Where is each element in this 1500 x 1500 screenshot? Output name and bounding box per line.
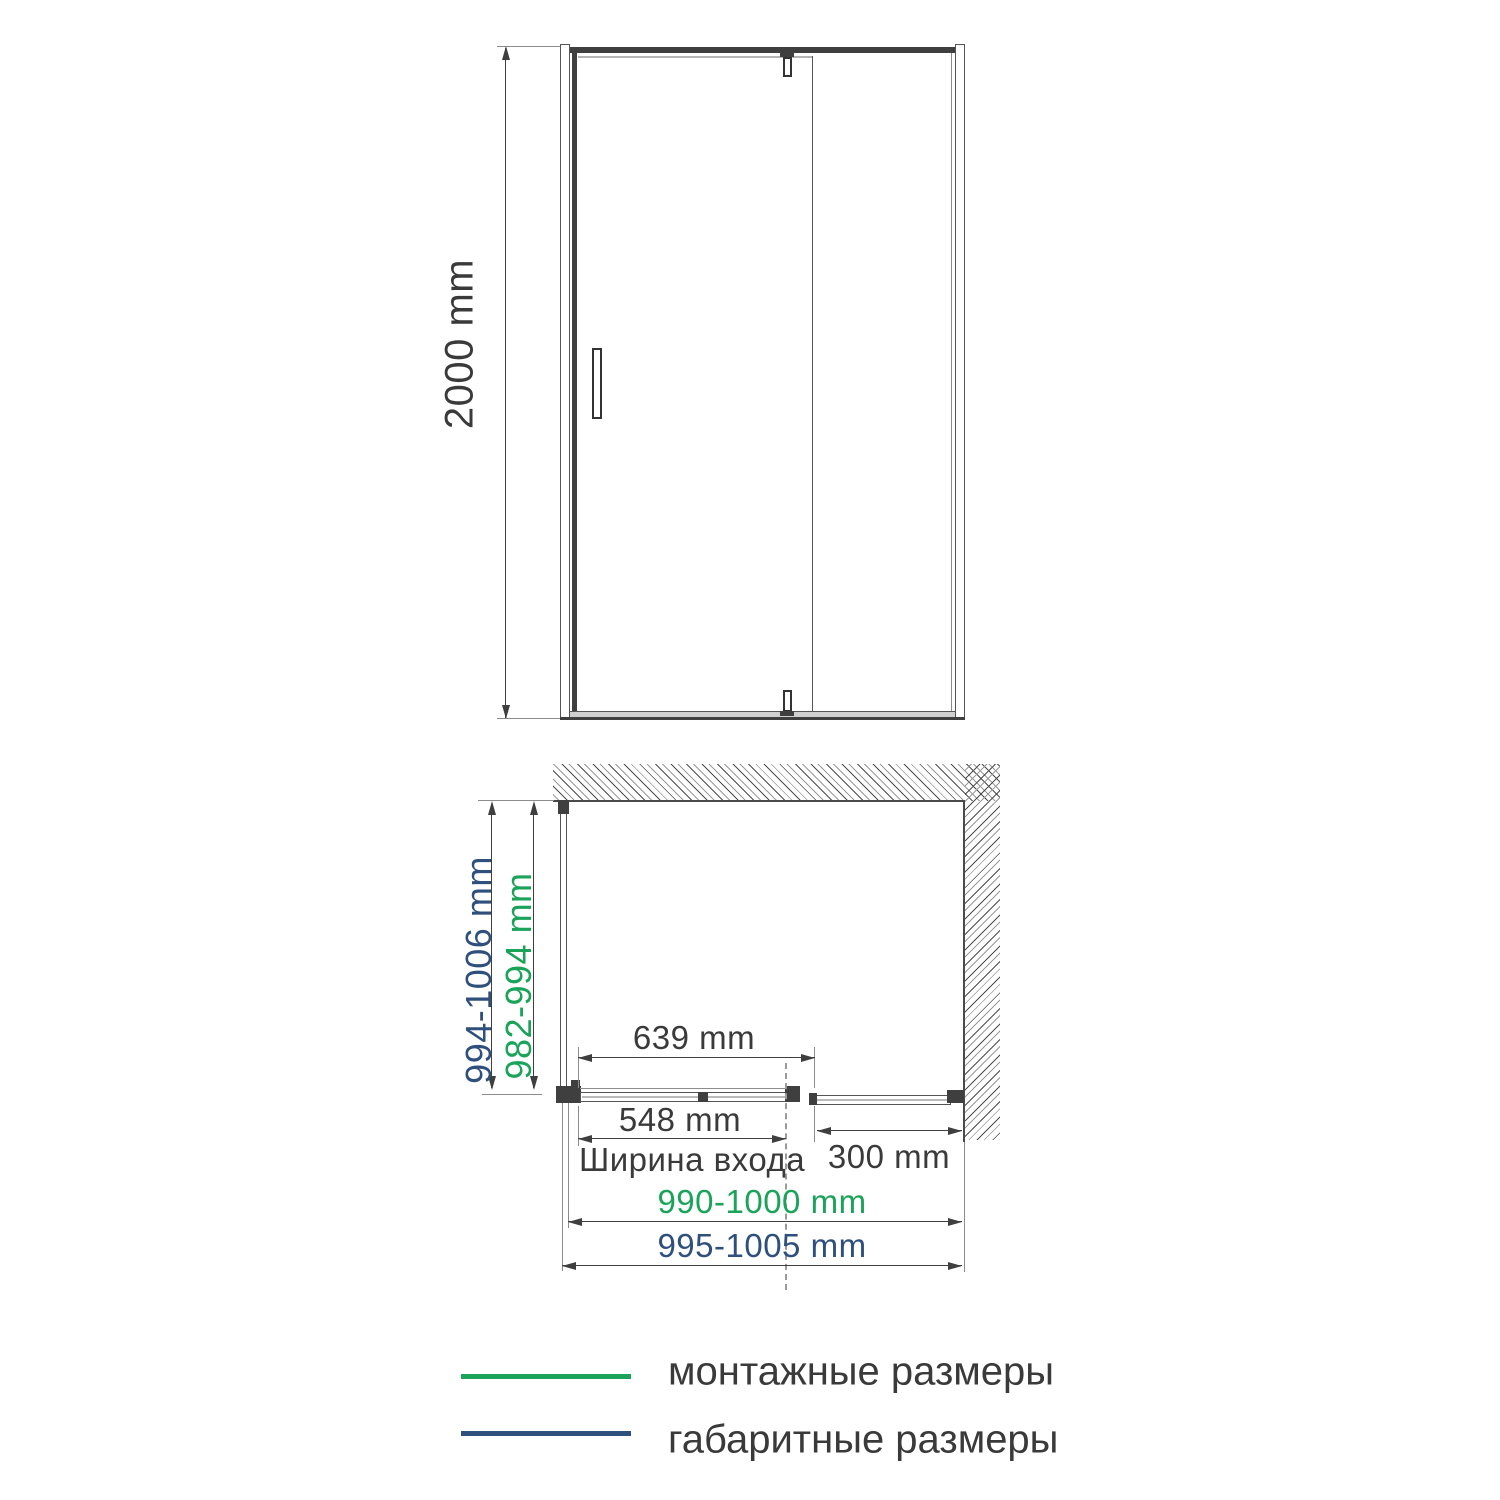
height-dim-arrow-down (502, 705, 510, 719)
fixed-dim-label: 300 mm (828, 1138, 950, 1176)
door-dim-label: 639 mm (633, 1019, 755, 1057)
overall-width-arrow-right (948, 1262, 962, 1270)
wall-face-top (553, 800, 965, 802)
overall-depth-dim-label: 994-1006 mm (458, 856, 500, 1084)
height-dim-line (505, 48, 506, 718)
overall-width-dim-line (562, 1265, 962, 1266)
door-handle (592, 348, 602, 419)
frame-bottom-edge (560, 717, 965, 720)
top-pivot-bracket (783, 57, 792, 77)
height-dim-arrow-up (502, 46, 510, 60)
bottom-pivot-bracket (783, 690, 792, 712)
door-top-guide (578, 56, 812, 58)
bottom-pivot-cap (780, 711, 794, 716)
width-dim-ext-outer (562, 1103, 563, 1271)
door-dim-arrow-left (578, 1054, 592, 1062)
fixed-dim-line (817, 1130, 962, 1131)
depth-dim-ext-bottom (482, 1094, 542, 1095)
fixed-panel-wall-block (947, 1090, 964, 1103)
mount-width-dim-label: 990-1000 mm (657, 1183, 866, 1221)
overall-width-arrow-left (562, 1262, 576, 1270)
shower-door-technical-drawing: 2000 mm (0, 0, 1500, 1500)
legend-swatch-mounting (461, 1374, 631, 1379)
fixed-panel-bar (810, 1095, 951, 1105)
door-panel-glass-line (582, 1096, 794, 1098)
door-dim-line (578, 1057, 815, 1058)
legend-swatch-overall (461, 1431, 631, 1436)
legend-label-overall: габаритные размеры (668, 1418, 1058, 1463)
overall-depth-arrow-up (488, 801, 496, 815)
mount-width-dim-line (568, 1221, 962, 1222)
door-panel-divider (812, 56, 813, 711)
legend-label-mounting: монтажные размеры (668, 1350, 1054, 1395)
side-panel-wall-clamp (558, 800, 569, 814)
door-bar-top-line (580, 1088, 796, 1089)
entry-dim-caption: Ширина входа (579, 1141, 805, 1179)
overall-width-dim-label: 995-1005 mm (657, 1227, 866, 1265)
fixed-panel-start-cap (809, 1093, 817, 1105)
frame-top-rail (570, 47, 955, 53)
width-dim-ext-inner (568, 1103, 569, 1228)
fixed-glass-right-edge (951, 48, 952, 714)
mount-depth-arrow-up (530, 801, 538, 815)
wall-hatch-right (965, 764, 1000, 1140)
fixed-panel-glass-line (812, 1099, 949, 1101)
fixed-dim-arrow-right (948, 1127, 962, 1135)
wall-hatch-top (553, 764, 1000, 801)
height-dim-label: 2000 mm (438, 259, 483, 429)
door-dim-arrow-right (801, 1054, 815, 1062)
mount-depth-dim-label: 982-994 mm (498, 872, 540, 1079)
fixed-dim-arrow-left (817, 1127, 831, 1135)
fixed-dim-ext-left (814, 1106, 815, 1142)
frame-left-wall-profile (560, 44, 570, 719)
door-hinge-profile (572, 47, 577, 714)
entry-dim-label: 548 mm (619, 1101, 741, 1139)
side-glass-panel (560, 802, 567, 1090)
wall-edge-extension (964, 1142, 965, 1272)
corner-connector-block (556, 1086, 581, 1103)
mount-width-arrow-right (948, 1218, 962, 1226)
door-pivot-block (785, 1086, 800, 1102)
frame-right-wall-profile (955, 44, 965, 719)
mount-width-arrow-left (568, 1218, 582, 1226)
